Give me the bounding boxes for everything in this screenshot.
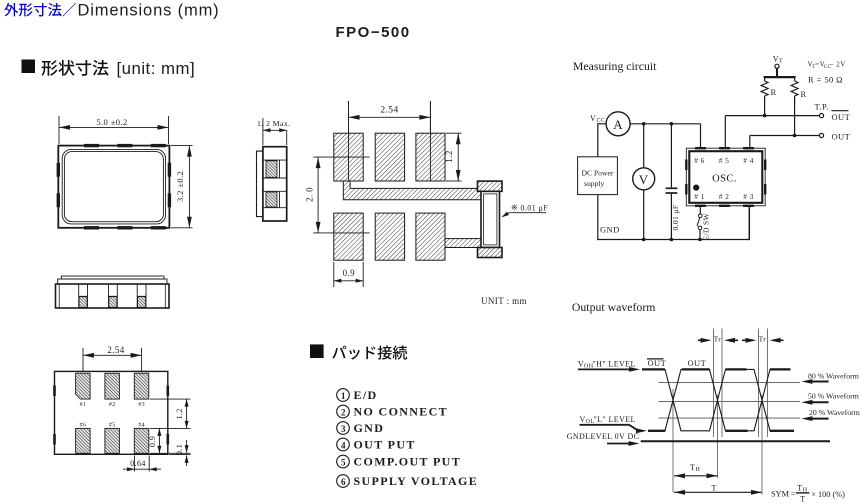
svg-text:"L" LEVEL: "L" LEVEL [594,415,636,424]
svg-text:2.54: 2.54 [107,345,124,355]
svg-text:0.1: 0.1 [175,444,184,455]
svg-text:# 3: # 3 [743,192,754,201]
svg-text:#4: #4 [138,423,145,429]
svg-text:0.9: 0.9 [148,436,157,447]
svg-text:0.64: 0.64 [130,459,146,468]
svg-text:OUT PUT: OUT PUT [354,438,416,452]
svg-text:− 2V: − 2V [830,61,846,69]
svg-text:supply: supply [584,179,604,188]
svg-text:V: V [639,172,649,187]
svg-text:SYM =: SYM = [771,490,796,499]
svg-text:GND: GND [600,225,620,235]
svg-text:#6: #6 [80,423,87,429]
svg-text:T: T [797,484,802,493]
svg-text:4: 4 [341,440,346,450]
svg-text:OUT: OUT [832,132,851,142]
svg-text:50 % Waveform: 50 % Waveform [808,392,859,401]
svg-text:Measuring circuit: Measuring circuit [573,59,657,73]
svg-text:T: T [800,495,805,504]
svg-text:Tr: Tr [714,334,722,343]
svg-text:# 6: # 6 [694,156,705,165]
svg-text:#5: #5 [109,423,116,429]
svg-text:3: 3 [341,424,346,434]
svg-text:# 2: # 2 [719,192,730,201]
svg-text:20 % Waveform: 20 % Waveform [809,408,860,417]
svg-text:GND: GND [354,421,385,435]
svg-text:#3: #3 [138,402,145,408]
svg-text:H: H [696,467,701,473]
svg-text:A: A [613,117,623,132]
svg-text:# 4: # 4 [743,156,754,165]
svg-text:SUPPLY VOLTAGE: SUPPLY VOLTAGE [354,474,479,488]
svg-text:80 % Waveform: 80 % Waveform [808,372,859,381]
svg-text:Dimensions (mm): Dimensions (mm) [78,2,220,20]
svg-text:0.9: 0.9 [343,268,356,278]
svg-text:1. 2 Max.: 1. 2 Max. [257,119,291,128]
svg-text:R: R [771,87,777,97]
svg-text:6: 6 [341,477,346,487]
svg-text:OUT: OUT [648,358,667,368]
svg-text:1.2: 1.2 [444,150,454,162]
svg-text:COMP.OUT PUT: COMP.OUT PUT [354,455,462,469]
svg-text:CC: CC [597,118,606,124]
svg-text:3.2 ±0.2: 3.2 ±0.2 [175,171,185,202]
svg-text:Output waveform: Output waveform [572,300,656,314]
svg-text:5.0 ±0.2: 5.0 ±0.2 [96,117,127,127]
svg-text:OUT: OUT [832,112,851,122]
svg-text:T: T [690,463,695,472]
svg-text:FPO−500: FPO−500 [336,24,411,41]
svg-text:[unit: mm]: [unit: mm] [117,59,196,78]
svg-text:※ 0.01 μF: ※ 0.01 μF [511,204,548,213]
svg-text:0.01 μF: 0.01 μF [671,205,680,231]
svg-text:1: 1 [341,391,346,401]
svg-text:E/D: E/D [354,388,378,402]
svg-text:NO CONNECT: NO CONNECT [354,405,449,419]
svg-text:R = 50 Ω: R = 50 Ω [808,75,843,85]
svg-text:GNDLEVEL 0V DC: GNDLEVEL 0V DC [567,432,640,441]
svg-text:T.P.: T.P. [815,102,829,112]
svg-text:5: 5 [341,457,346,467]
svg-text:2. 0: 2. 0 [304,187,314,202]
svg-text:DC Power: DC Power [582,169,614,178]
svg-text:E/D SW: E/D SW [702,212,711,240]
svg-text:OSC.: OSC. [712,174,737,185]
svg-text:UNIT : mm: UNIT : mm [481,296,527,306]
svg-text:V: V [590,114,596,123]
svg-text:# 1: # 1 [694,192,705,201]
svg-text:T: T [779,59,783,65]
svg-text:2: 2 [341,407,346,417]
svg-text:2.54: 2.54 [380,106,398,116]
svg-text:OUT: OUT [688,358,707,368]
svg-text:× 100 (%): × 100 (%) [811,490,845,499]
svg-text:Tr: Tr [759,334,767,343]
svg-text:# 5: # 5 [719,156,730,165]
svg-text:1.2: 1.2 [175,408,184,419]
svg-text:#1: #1 [80,402,87,408]
svg-text:#2: #2 [109,402,116,408]
svg-text:T: T [712,484,717,493]
svg-text:R: R [801,89,807,99]
